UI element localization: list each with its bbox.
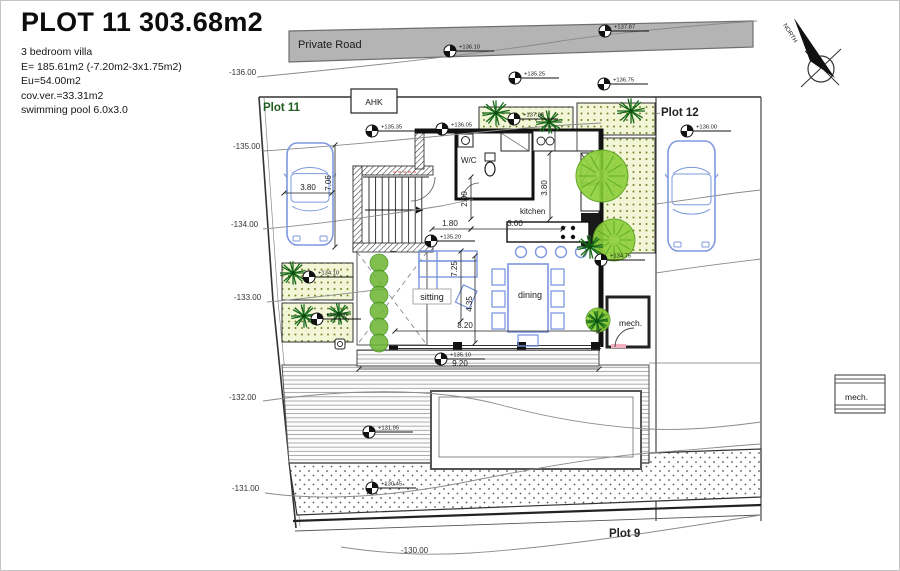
spot-level-value: +130.45 xyxy=(381,482,402,488)
contour-line xyxy=(656,259,761,273)
plot-label: Plot 12 xyxy=(661,107,699,119)
spot-level-marker: +134.75 xyxy=(595,254,645,267)
contour-label: -133.00 xyxy=(234,293,262,302)
title-block: PLOT 11 303.68m2 3 bedroom villaE= 185.6… xyxy=(21,7,263,118)
car-icon xyxy=(665,141,718,251)
floor-drain-icon xyxy=(335,339,345,349)
room-label: sitting xyxy=(420,292,444,302)
wood-deck xyxy=(357,350,599,366)
spot-level-value: +135.35 xyxy=(381,125,402,131)
room-label: kitchen xyxy=(520,207,545,216)
dimension-label: 3.00 xyxy=(507,219,523,228)
contour-label: -134.00 xyxy=(231,220,259,229)
contour-label: -135.00 xyxy=(233,142,261,151)
dimension-label: 9.20 xyxy=(452,359,468,368)
tree-icon xyxy=(617,98,645,123)
north-label: NORTH xyxy=(781,23,797,44)
contour-label: -130.00 xyxy=(401,546,429,555)
room-label: AHK xyxy=(365,97,383,107)
spot-level-marker: +135.25 xyxy=(509,72,559,85)
tree-icon xyxy=(586,311,608,331)
room-label: mech. xyxy=(845,392,868,402)
dimension-label: 3.80 xyxy=(300,183,316,192)
note-line: Eu=54.00m2 xyxy=(21,74,263,89)
spot-level-marker: +136.75 xyxy=(598,78,648,91)
contour-label: -132.00 xyxy=(229,393,257,402)
spot-level-value: +137.85 xyxy=(523,113,544,119)
plot-label: Plot 11 xyxy=(263,102,301,114)
north-arrow-icon xyxy=(794,18,835,78)
spot-level-value: +133.60 xyxy=(326,313,347,319)
north-compass xyxy=(794,18,841,87)
note-line: cov.ver.=33.31m2 xyxy=(21,89,263,104)
note-line: E= 185.61m2 (-7.20m2-3x1.75m2) xyxy=(21,60,263,75)
spot-level-value: +135.10 xyxy=(450,353,471,359)
dimension-label: 4.35 xyxy=(465,296,474,312)
road-label: Private Road xyxy=(298,39,362,51)
dimension-label: 2.00 xyxy=(460,191,469,207)
tree-icon xyxy=(482,100,510,125)
spot-level-value: +131.95 xyxy=(378,426,399,432)
spot-level-value: +137.87 xyxy=(614,25,635,31)
spot-level-value: +134.75 xyxy=(610,254,631,260)
tree-canopy-icon xyxy=(576,150,628,202)
room-label: mech. xyxy=(619,318,642,328)
note-line: 3 bedroom villa xyxy=(21,45,263,60)
title-notes: 3 bedroom villaE= 185.61m2 (-7.20m2-3x1.… xyxy=(21,45,263,118)
dimension-label: 1.80 xyxy=(442,219,458,228)
room-label: W/C xyxy=(461,156,477,165)
dimension-label: 7.06 xyxy=(324,175,333,191)
car-icon xyxy=(284,143,336,245)
note-line: swimming pool 6.0x3.0 xyxy=(21,103,263,118)
spot-level-value: +136.10 xyxy=(459,45,480,51)
spot-level-marker: +135.35 xyxy=(366,125,416,138)
site-plan-sheet: +136.10+135.25+137.87+136.75+135.35+136.… xyxy=(0,0,900,571)
dimension-label: 8.20 xyxy=(457,321,473,330)
room-label: dining xyxy=(518,290,542,300)
spot-level-value: +136.00 xyxy=(696,125,717,131)
spot-level-value: +135.20 xyxy=(440,235,461,241)
spot-level-value: +136.05 xyxy=(451,123,472,129)
spot-level-value: +136.75 xyxy=(613,78,634,84)
plot-label: Plot 9 xyxy=(609,528,640,540)
spot-level-value: +134.10 xyxy=(318,271,339,277)
contour-label: -131.00 xyxy=(232,484,260,493)
tree-icon xyxy=(280,261,306,284)
dimension-label: 7.25 xyxy=(450,261,459,277)
spot-level-value: +135.25 xyxy=(524,72,545,78)
spot-level-marker: +136.00 xyxy=(681,125,731,138)
dimension-label: 3.80 xyxy=(540,180,549,196)
page-title: PLOT 11 303.68m2 xyxy=(21,7,263,38)
